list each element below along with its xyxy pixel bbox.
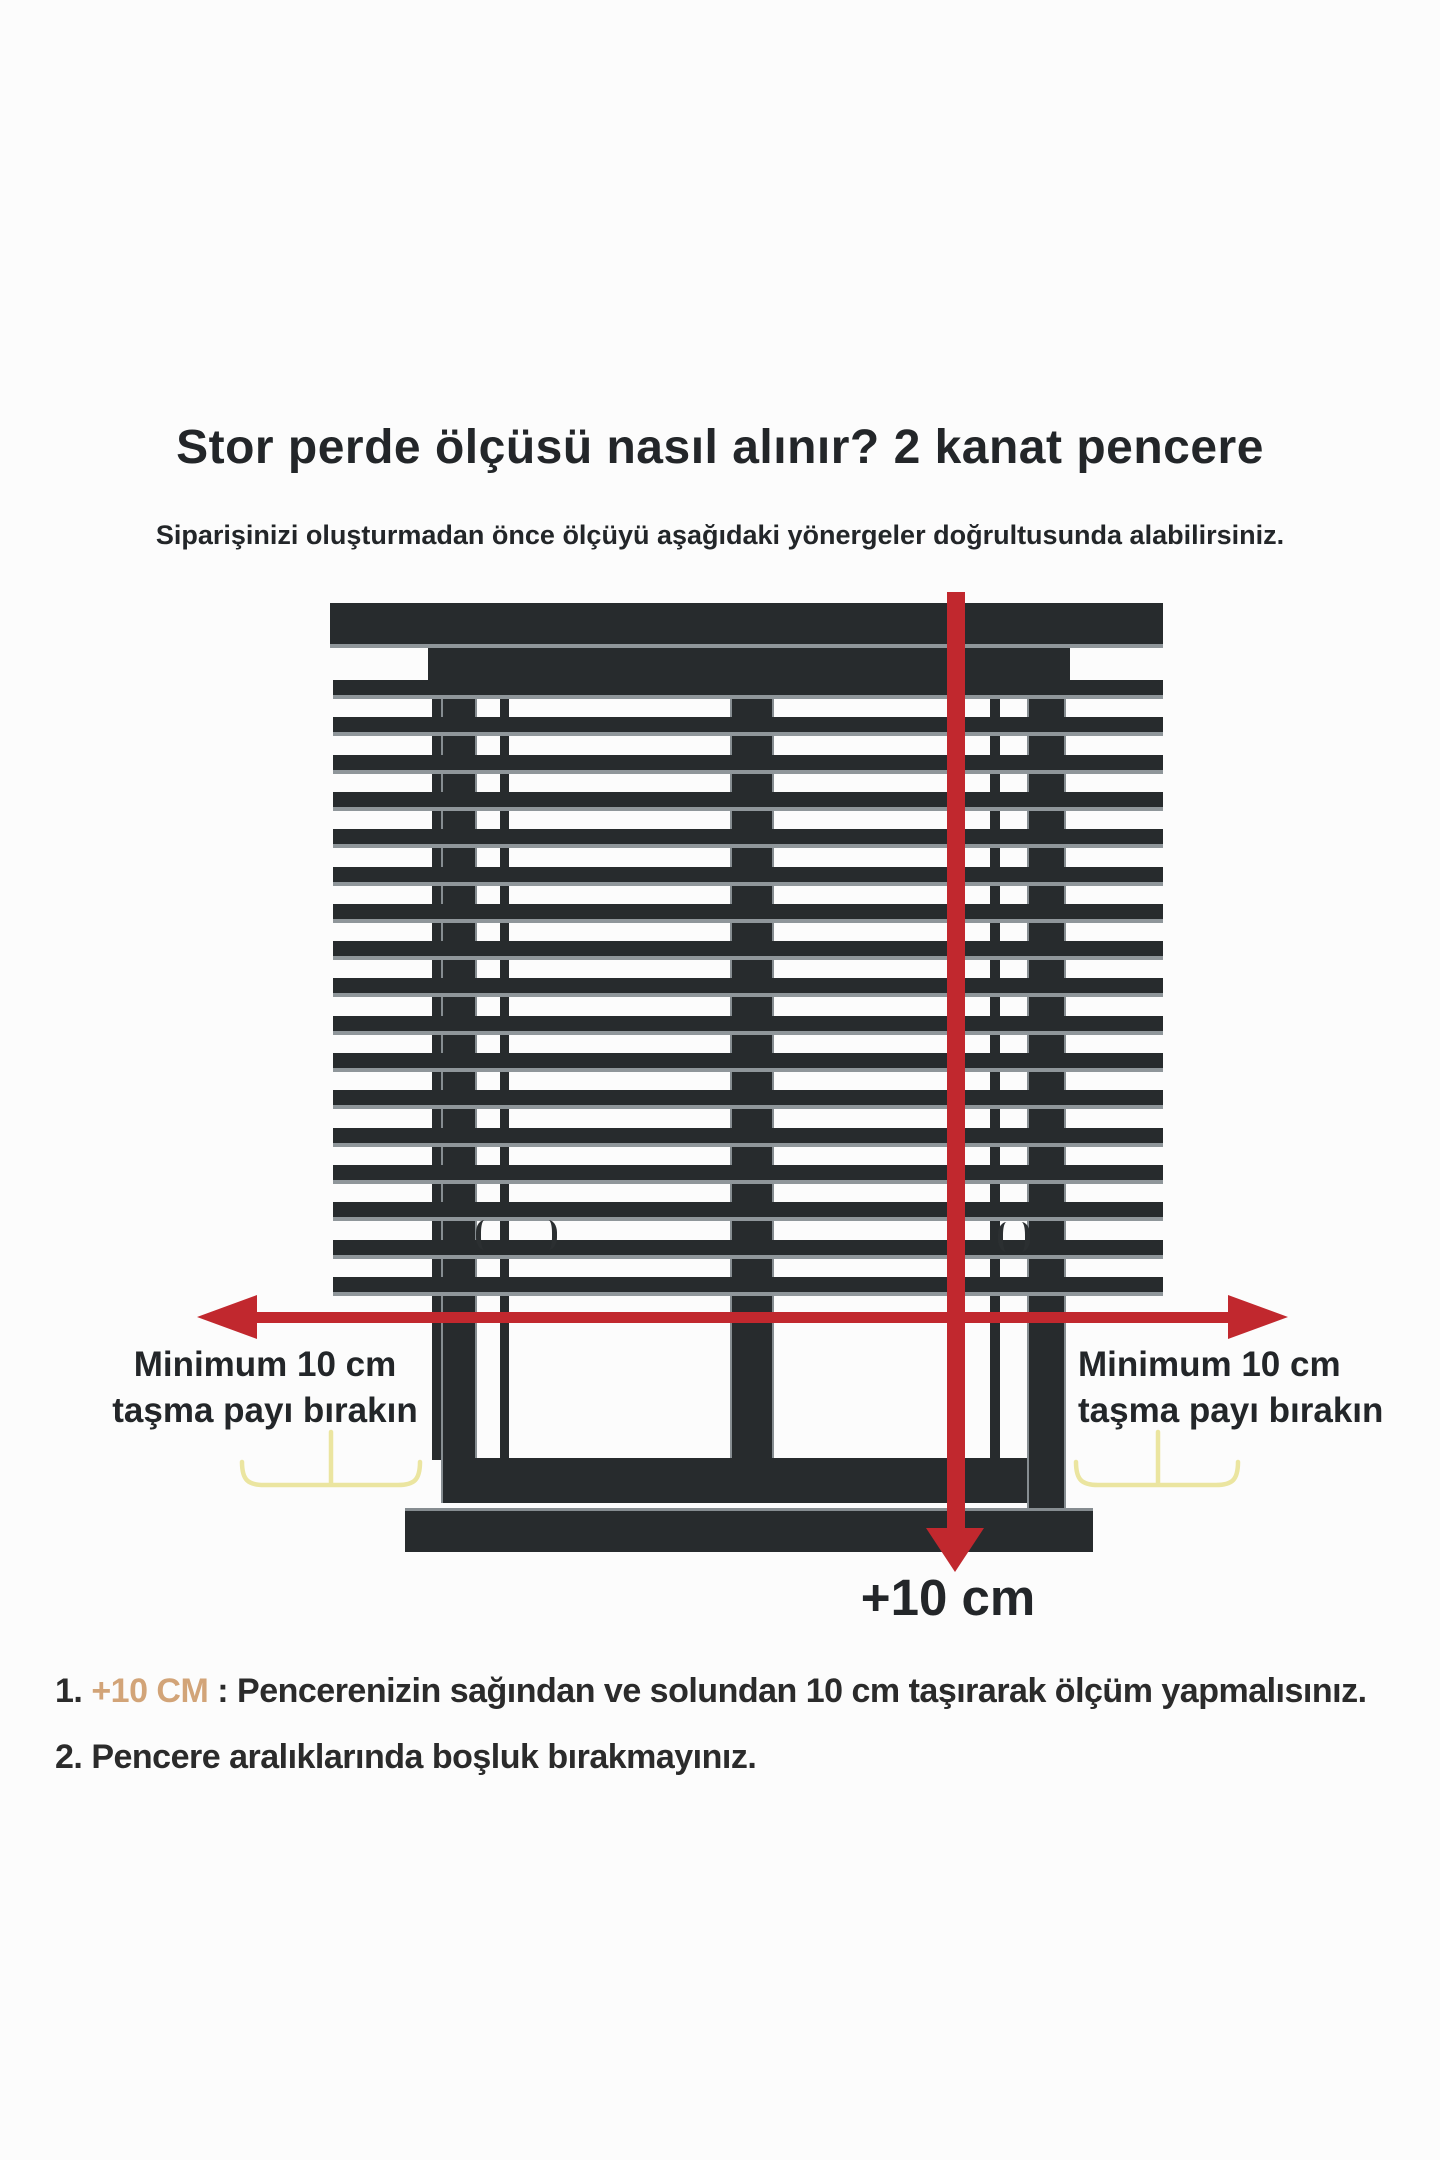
right-arrowhead-icon — [1228, 1295, 1288, 1339]
window-post-right — [1027, 648, 1066, 1510]
blind-slat — [333, 1165, 1163, 1184]
down-arrowhead-icon — [926, 1528, 984, 1572]
blind-slat — [333, 1240, 1163, 1259]
left-overhang-label-line1: Minimum 10 cm — [65, 1342, 465, 1388]
instruction-1-text: Pencerenizin sağından ve solundan 10 cm … — [237, 1672, 1367, 1710]
blind-slat — [333, 755, 1163, 774]
instruction-1-number: 1. — [55, 1672, 91, 1710]
blind-cord-icon — [1013, 1222, 1030, 1252]
right-overhang-label-line1: Minimum 10 cm — [1078, 1342, 1418, 1388]
instruction-1-highlight: +10 CM — [91, 1672, 208, 1710]
page-title: Stor perde ölçüsü nasıl alınır? 2 kanat … — [0, 420, 1440, 475]
blind-slat — [333, 680, 1163, 699]
window-bottom-frame — [473, 1458, 1027, 1503]
blind-slat — [333, 717, 1163, 736]
blind-slat — [333, 867, 1163, 886]
blind-slat — [333, 941, 1163, 960]
blind-header-rail — [330, 603, 1163, 648]
blind-slat — [333, 792, 1163, 811]
blind-slat — [333, 829, 1163, 848]
infographic-canvas: Stor perde ölçüsü nasıl alınır? 2 kanat … — [0, 0, 1440, 2160]
left-overhang-label-line2: taşma payı bırakın — [65, 1388, 465, 1434]
instruction-2-text: Pencere aralıklarında boşluk bırakmayını… — [91, 1738, 756, 1776]
blind-slat — [333, 1202, 1163, 1221]
window-center-mullion — [730, 648, 774, 1503]
instruction-line-1: 1. +10 CM : Pencerenizin sağından ve sol… — [55, 1672, 1415, 1711]
blind-slat — [333, 1053, 1163, 1072]
window-sill — [405, 1508, 1093, 1552]
page-subtitle: Siparişinizi oluşturmadan önce ölçüyü aş… — [0, 520, 1440, 551]
instruction-1-separator: : — [208, 1672, 237, 1710]
blind-cord-icon — [476, 1220, 493, 1250]
instruction-2-number: 2. — [55, 1738, 91, 1776]
blind-cord-icon — [540, 1220, 557, 1250]
right-underbrace-icon — [1072, 1428, 1242, 1494]
plus-10-cm-label: +10 cm — [833, 1568, 1063, 1627]
width-measure-arrow — [250, 1312, 1235, 1323]
blind-slat — [333, 1277, 1163, 1296]
blind-slat — [333, 1128, 1163, 1147]
left-underbrace-icon — [238, 1428, 424, 1494]
window-top-frame — [428, 648, 1070, 680]
blind-slat — [333, 904, 1163, 923]
blind-slat — [333, 1016, 1163, 1035]
height-measure-arrow — [947, 592, 965, 1530]
instruction-line-2: 2. Pencere aralıklarında boşluk bırakmay… — [55, 1738, 1415, 1777]
left-arrowhead-icon — [197, 1295, 257, 1339]
blind-slat — [333, 978, 1163, 997]
right-overhang-label: Minimum 10 cm taşma payı bırakın — [1078, 1342, 1418, 1434]
blind-slat — [333, 1090, 1163, 1109]
left-overhang-label: Minimum 10 cm taşma payı bırakın — [65, 1342, 465, 1434]
right-overhang-label-line2: taşma payı bırakın — [1078, 1388, 1418, 1434]
